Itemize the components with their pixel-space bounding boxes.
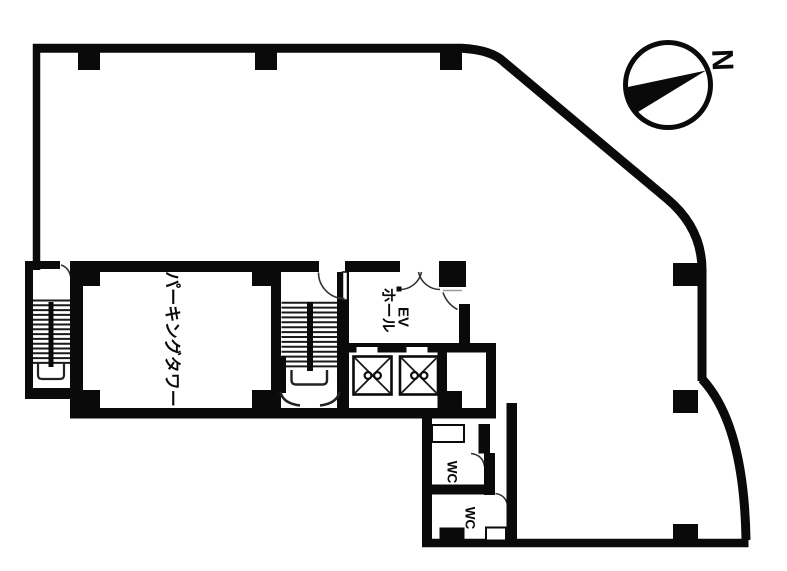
- svg-text:WC: WC: [445, 461, 460, 484]
- svg-text:パーキングタワー: パーキングタワー: [163, 271, 183, 407]
- svg-text:WC: WC: [463, 507, 478, 530]
- svg-text:N: N: [705, 49, 739, 72]
- svg-text:EV: EV: [395, 307, 412, 327]
- svg-text:ホール: ホール: [380, 287, 397, 332]
